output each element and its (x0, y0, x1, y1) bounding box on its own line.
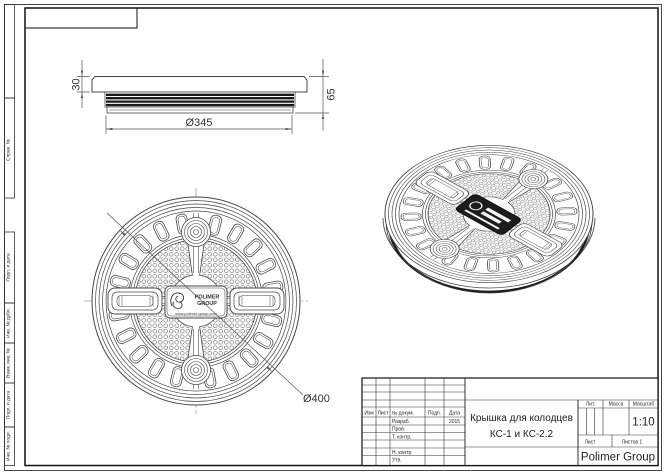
dim-total-height-value: 65 (326, 88, 338, 100)
tb-col-doc: № докум. (392, 411, 414, 417)
tb-scale-label: Масштаб (633, 402, 655, 408)
tb-sheet-label: Лист (585, 440, 597, 446)
isometric-view (342, 117, 635, 310)
tb-col-date: Дата (449, 411, 460, 417)
top-left-reference-box (25, 8, 137, 28)
stamp-podp-data-2: Подп. и дата (6, 391, 12, 420)
tb-scale-value: 1:10 (632, 417, 654, 429)
tb-company: Polimer Group (581, 452, 655, 464)
stamp-vzam-inv: Взам. инв. № (6, 348, 12, 378)
side-view: 30 65 Ø345 (71, 59, 338, 134)
side-view-cap (92, 77, 307, 93)
stamp-podp-data-1: Подп. и дата (6, 253, 12, 282)
tb-col-izm: Изм (364, 411, 374, 417)
drawing-page: POLIMER GROUP www.polimer-group.com Спра… (0, 0, 666, 475)
tb-col-list: Лист (378, 411, 390, 417)
tb-lit-label: Лит. (586, 402, 595, 408)
tb-title-line2: КС-1 и КС-2.2 (490, 429, 554, 440)
stamp-inv-podl: Инв. № подл. (6, 431, 12, 461)
dim-diameter-400-value: Ø400 (303, 393, 330, 405)
tb-row-checked: Пров. (392, 427, 405, 433)
dim-total-height (295, 59, 329, 131)
tb-title-line1: Крышка для колодцев (470, 413, 573, 424)
plan-view: Ø400 (84, 188, 330, 414)
dim-cap-height-value: 30 (71, 78, 83, 90)
dim-diameter-345-value: Ø345 (186, 117, 213, 129)
stamp-sprav-no: Справ. № (6, 139, 12, 161)
tb-row-ncontrol: Н. контр. (392, 450, 413, 456)
tb-row-approved: Утв. (392, 458, 402, 464)
engineering-drawing-canvas: POLIMER GROUP www.polimer-group.com Спра… (0, 0, 666, 475)
tb-mass-label: Масса (609, 402, 624, 408)
title-block: Изм Лист № докум. Подп. Дата Разраб. Про… (362, 378, 658, 466)
tb-row-developed: Разраб. (392, 419, 410, 425)
margin-stamp-labels: Справ. № Подп. и дата Инв. № дубл. Взам.… (6, 139, 12, 461)
tb-row-tcontrol: Т. контр. (392, 435, 412, 441)
tb-col-sign: Подп. (428, 411, 441, 417)
tb-sheets-label: Листов 1 (622, 440, 643, 446)
tb-date-value: 2015 (449, 419, 460, 425)
stamp-inv-dubl: Инв. № дубл. (6, 308, 12, 338)
